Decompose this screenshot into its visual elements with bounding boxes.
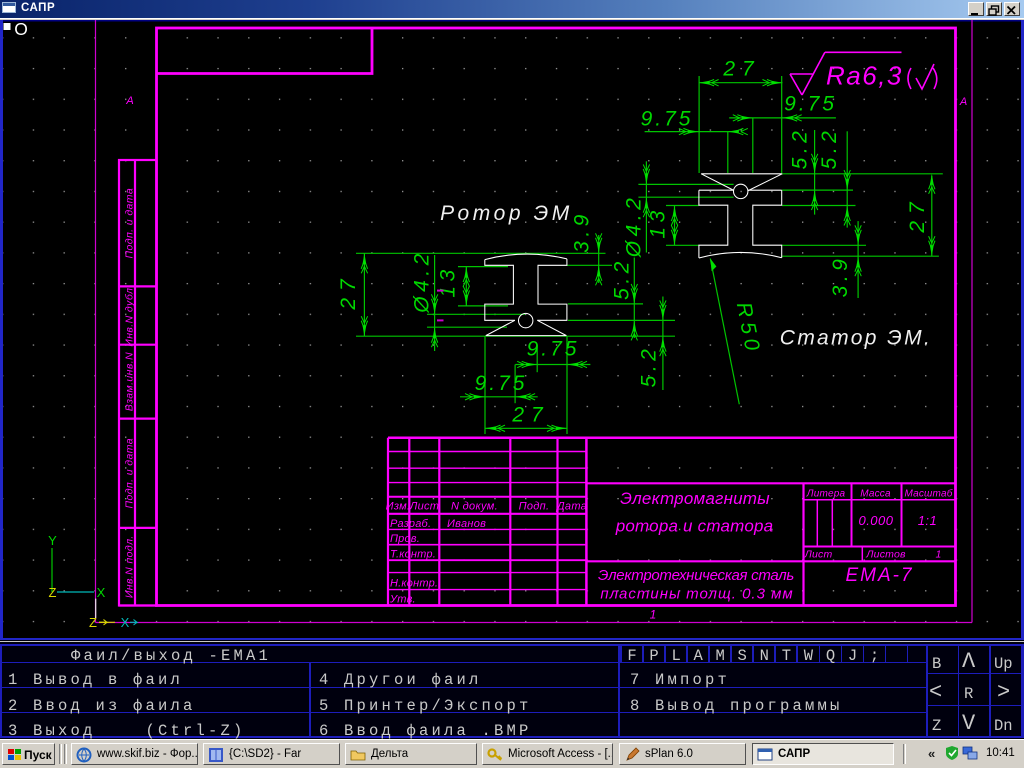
svg-text:Т.контр.: Т.контр.: [390, 548, 436, 560]
svg-text:Изм.: Изм.: [386, 501, 411, 513]
svg-text:1:1: 1:1: [918, 513, 938, 528]
svg-text:Масса: Масса: [860, 489, 891, 500]
svg-text:1: 1: [935, 549, 941, 561]
svg-text:1: 1: [650, 608, 657, 622]
svg-text:9.75: 9.75: [641, 108, 694, 131]
svg-text:3.9: 3.9: [829, 255, 852, 298]
svg-text:27: 27: [722, 58, 760, 81]
svg-text:9.75: 9.75: [527, 338, 580, 361]
svg-text:5.2: 5.2: [789, 127, 812, 170]
svg-text:Лист: Лист: [804, 549, 833, 561]
svg-text:27: 27: [511, 404, 549, 427]
svg-text:Z: Z: [89, 615, 97, 630]
svg-text:ротора и статора: ротора и статора: [615, 517, 774, 536]
svg-text:9.75: 9.75: [475, 372, 528, 395]
svg-text:5.2: 5.2: [818, 127, 841, 170]
svg-text:Подп.: Подп.: [519, 501, 550, 513]
svg-text:пластины толщ. 0.3 мм: пластины толщ. 0.3 мм: [600, 586, 793, 603]
svg-text:X: X: [121, 615, 130, 630]
svg-text:Иванов: Иванов: [447, 518, 486, 530]
svg-text:Электротехническая сталь: Электротехническая сталь: [598, 567, 794, 584]
svg-text:3.9: 3.9: [571, 210, 594, 253]
svg-text:O: O: [14, 20, 28, 39]
svg-text:Ra6,3: Ra6,3: [826, 61, 903, 91]
svg-text:9.75: 9.75: [784, 93, 837, 116]
svg-text:Утв.: Утв.: [389, 593, 416, 605]
svg-text:Статор ЭМ.: Статор ЭМ.: [780, 327, 932, 350]
svg-text:A: A: [125, 95, 133, 107]
svg-text:Инв.N подл.: Инв.N подл.: [124, 535, 136, 598]
svg-text:13: 13: [647, 206, 670, 238]
svg-text:Подп. и дата: Подп. и дата: [124, 188, 136, 259]
svg-text:Литера: Литера: [806, 489, 846, 500]
svg-text:Ø4.2: Ø4.2: [623, 194, 646, 259]
svg-text:27: 27: [906, 195, 929, 233]
svg-text:0.000: 0.000: [858, 513, 893, 528]
svg-text:Y: Y: [48, 533, 57, 548]
svg-text:Разраб.: Разраб.: [390, 518, 431, 530]
svg-text:Инв.N дубл.: Инв.N дубл.: [124, 284, 136, 346]
svg-text:13: 13: [437, 265, 460, 297]
svg-text:X: X: [97, 585, 106, 600]
svg-text:Н.контр.: Н.контр.: [390, 578, 438, 590]
svg-text:5.2: 5.2: [611, 257, 634, 300]
svg-text:N докум.: N докум.: [451, 501, 498, 513]
svg-text:5.2: 5.2: [638, 345, 661, 388]
svg-text:A: A: [959, 96, 967, 108]
svg-text:Электромагниты: Электромагниты: [620, 489, 770, 508]
svg-text:Ротор ЭМ: Ротор ЭМ: [440, 202, 573, 225]
svg-text:ЕМА-7: ЕМА-7: [845, 565, 913, 586]
svg-text:27: 27: [337, 272, 360, 310]
svg-text:Ø4.2: Ø4.2: [411, 249, 434, 314]
svg-text:Взам.инв.N: Взам.инв.N: [124, 352, 136, 411]
svg-text:Z: Z: [49, 585, 57, 600]
svg-text:Пров.: Пров.: [390, 533, 420, 545]
svg-text:Масштаб: Масштаб: [904, 488, 952, 500]
svg-text:Лист: Лист: [409, 501, 440, 513]
svg-text:Подп. и дата: Подп. и дата: [124, 438, 136, 509]
svg-text:Листов: Листов: [865, 549, 906, 561]
svg-text:Дата: Дата: [555, 501, 587, 513]
